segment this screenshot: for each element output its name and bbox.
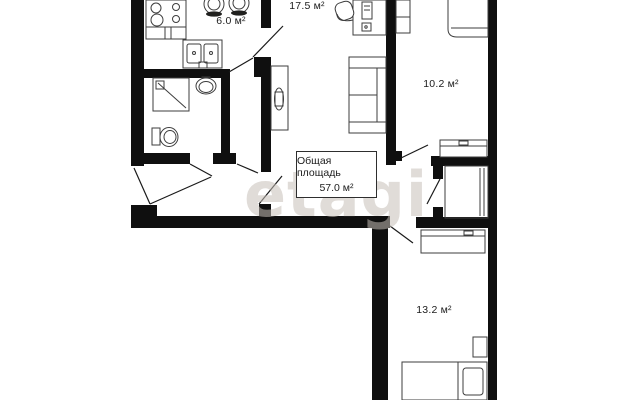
toilet: [152, 128, 178, 147]
bed-large: [402, 362, 487, 400]
entry-door-leaf-2: [150, 177, 211, 204]
bed-small-outline: [448, 0, 488, 37]
wall-bathroom-bottom: [144, 153, 190, 164]
wall-kitchen-bathroom: [144, 69, 230, 78]
kitchen-area-label: 6.0 м²: [204, 15, 258, 27]
desk: [353, 0, 386, 35]
bedroom-small-door-leaf: [401, 145, 428, 158]
kitchen-door-leaf-outer: [253, 26, 283, 57]
desk-top: [353, 0, 386, 35]
wall-left-upper: [131, 0, 144, 166]
total-area-title: Общая площадь: [297, 155, 376, 179]
washbasin: [196, 77, 216, 94]
tv-stand: [271, 66, 288, 130]
kitchen-sink: [183, 40, 222, 68]
closet: [445, 166, 488, 218]
shower: [153, 78, 189, 111]
floor-plan-canvas: etagi 6.0 м² 17.5 м² 10.2 м² 13.2 м² Общ…: [0, 0, 640, 400]
dresser: [440, 140, 487, 157]
dresser-body: [440, 140, 487, 157]
nightstand: [473, 337, 487, 357]
desk-chair: [334, 0, 356, 22]
toilet-tank: [152, 128, 160, 145]
wall-bedroom-large-left: [372, 217, 388, 400]
nightstand-body: [473, 337, 487, 357]
wall-living-left-upper: [261, 0, 271, 28]
bedroom-small-area-label: 10.2 м²: [414, 78, 468, 90]
living-room-area-label: 17.5 м²: [280, 0, 334, 12]
wall-entry-door-post: [144, 205, 157, 217]
closet-door-leaf: [427, 179, 440, 204]
wall-bathroom-door-post: [213, 153, 236, 164]
bedroom-large-area-label: 13.2 м²: [407, 304, 461, 316]
wardrobe: [421, 230, 485, 253]
bedroom-small-shelf: [396, 0, 410, 33]
bed-small: [448, 0, 488, 37]
sofa: [349, 57, 386, 133]
wardrobe-body: [421, 230, 485, 253]
wall-living-left: [261, 70, 271, 172]
total-area-value: 57.0 м²: [319, 182, 353, 194]
chair-seat: [334, 0, 356, 22]
wall-bathroom-right: [221, 69, 230, 160]
stove: [146, 0, 186, 39]
kitchen-counter: [146, 27, 186, 39]
wall-right-outer: [488, 0, 497, 400]
kitchen-door-leaf-inner: [229, 58, 253, 72]
tv-stand-body: [271, 66, 288, 130]
wall-living-right: [386, 0, 396, 165]
entry-door-leaf-1: [134, 168, 150, 204]
wall-closet-post-upper: [433, 166, 443, 179]
bathroom-door-leaf: [190, 164, 212, 176]
total-area-box: Общая площадь 57.0 м²: [296, 151, 377, 198]
closet-outline: [445, 166, 488, 218]
